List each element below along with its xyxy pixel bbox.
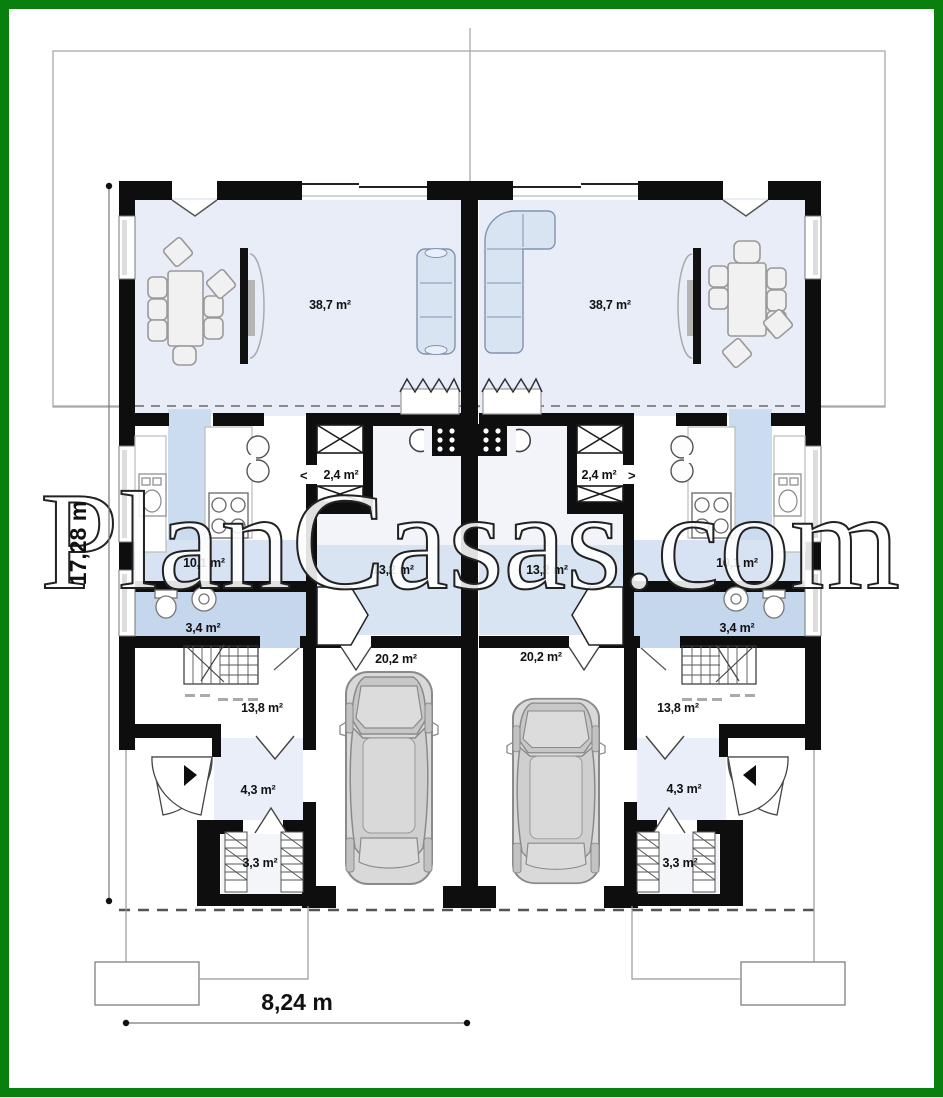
svg-text:4,3 m²: 4,3 m² <box>241 783 276 797</box>
svg-text:PlanCasas.com: PlanCasas.com <box>40 464 900 619</box>
svg-text:38,7 m²: 38,7 m² <box>309 298 351 312</box>
svg-text:13,8 m²: 13,8 m² <box>241 701 283 715</box>
svg-text:3,3 m²: 3,3 m² <box>243 856 278 870</box>
svg-text:8,24 m: 8,24 m <box>261 989 333 1015</box>
svg-text:13,8 m²: 13,8 m² <box>657 701 699 715</box>
svg-text:20,2 m²: 20,2 m² <box>520 650 562 664</box>
svg-text:3,4 m²: 3,4 m² <box>720 621 755 635</box>
svg-text:4,3 m²: 4,3 m² <box>667 782 702 796</box>
svg-text:17,28 m: 17,28 m <box>65 501 91 585</box>
svg-text:38,7 m²: 38,7 m² <box>589 298 631 312</box>
svg-text:20,2 m²: 20,2 m² <box>375 652 417 666</box>
svg-text:3,3 m²: 3,3 m² <box>663 856 698 870</box>
svg-text:3,4 m²: 3,4 m² <box>186 621 221 635</box>
